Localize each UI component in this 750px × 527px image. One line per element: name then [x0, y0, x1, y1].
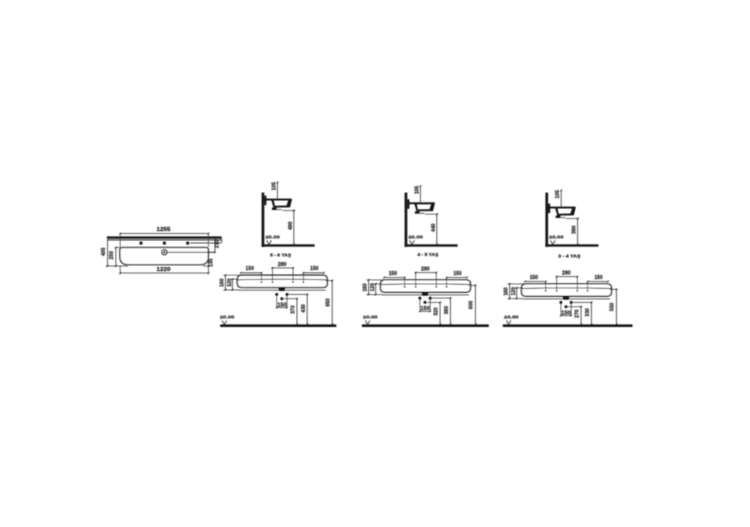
svg-text:430: 430: [301, 304, 307, 313]
svg-text:150: 150: [246, 266, 255, 272]
svg-text:160: 160: [219, 278, 225, 287]
svg-text:150: 150: [277, 302, 286, 308]
svg-text:3 - 4 YAŞ: 3 - 4 YAŞ: [558, 253, 581, 259]
svg-text:5 - 6 YAŞ: 5 - 6 YAŞ: [270, 253, 292, 259]
svg-text:±0.00: ±0.00: [363, 315, 378, 321]
svg-text:150: 150: [561, 310, 570, 316]
svg-text:150: 150: [310, 266, 319, 272]
svg-text:210: 210: [215, 240, 221, 249]
svg-text:150: 150: [389, 271, 398, 277]
svg-text:380: 380: [444, 306, 450, 315]
svg-text:1255: 1255: [157, 227, 171, 233]
svg-text:270: 270: [575, 309, 581, 318]
svg-text:440: 440: [431, 223, 437, 232]
svg-text:±0.00: ±0.00: [549, 235, 564, 241]
svg-text:120: 120: [511, 287, 517, 296]
svg-text:120: 120: [227, 278, 233, 287]
svg-text:150: 150: [420, 306, 429, 312]
svg-text:390: 390: [572, 225, 578, 234]
svg-text:280: 280: [562, 271, 571, 277]
svg-text:105: 105: [555, 190, 561, 199]
svg-text:4 - 5 YAŞ: 4 - 5 YAŞ: [417, 252, 439, 258]
svg-text:250: 250: [109, 251, 115, 260]
svg-text:330: 330: [585, 308, 591, 317]
svg-text:160: 160: [504, 287, 510, 296]
svg-text:490: 490: [288, 221, 294, 230]
svg-text:650: 650: [325, 298, 331, 307]
svg-text:105: 105: [414, 186, 420, 195]
svg-text:120: 120: [370, 283, 376, 292]
svg-text:320: 320: [434, 307, 440, 316]
svg-text:105: 105: [271, 182, 277, 191]
svg-text:150: 150: [453, 271, 462, 277]
svg-text:135: 135: [209, 258, 215, 267]
svg-text:405: 405: [101, 247, 107, 256]
svg-text:370: 370: [291, 305, 297, 314]
svg-text:600: 600: [469, 301, 475, 310]
svg-text:±0.00: ±0.00: [265, 235, 280, 241]
svg-text:1220: 1220: [157, 267, 171, 273]
svg-text:±0.00: ±0.00: [220, 315, 235, 321]
svg-text:150: 150: [530, 275, 539, 281]
svg-text:160: 160: [363, 283, 369, 292]
svg-text:280: 280: [421, 267, 430, 273]
svg-text:280: 280: [278, 262, 287, 268]
svg-text:550: 550: [610, 303, 616, 312]
svg-text:±0.00: ±0.00: [408, 235, 423, 241]
svg-text:150: 150: [594, 275, 603, 281]
svg-text:±0.00: ±0.00: [504, 315, 519, 321]
